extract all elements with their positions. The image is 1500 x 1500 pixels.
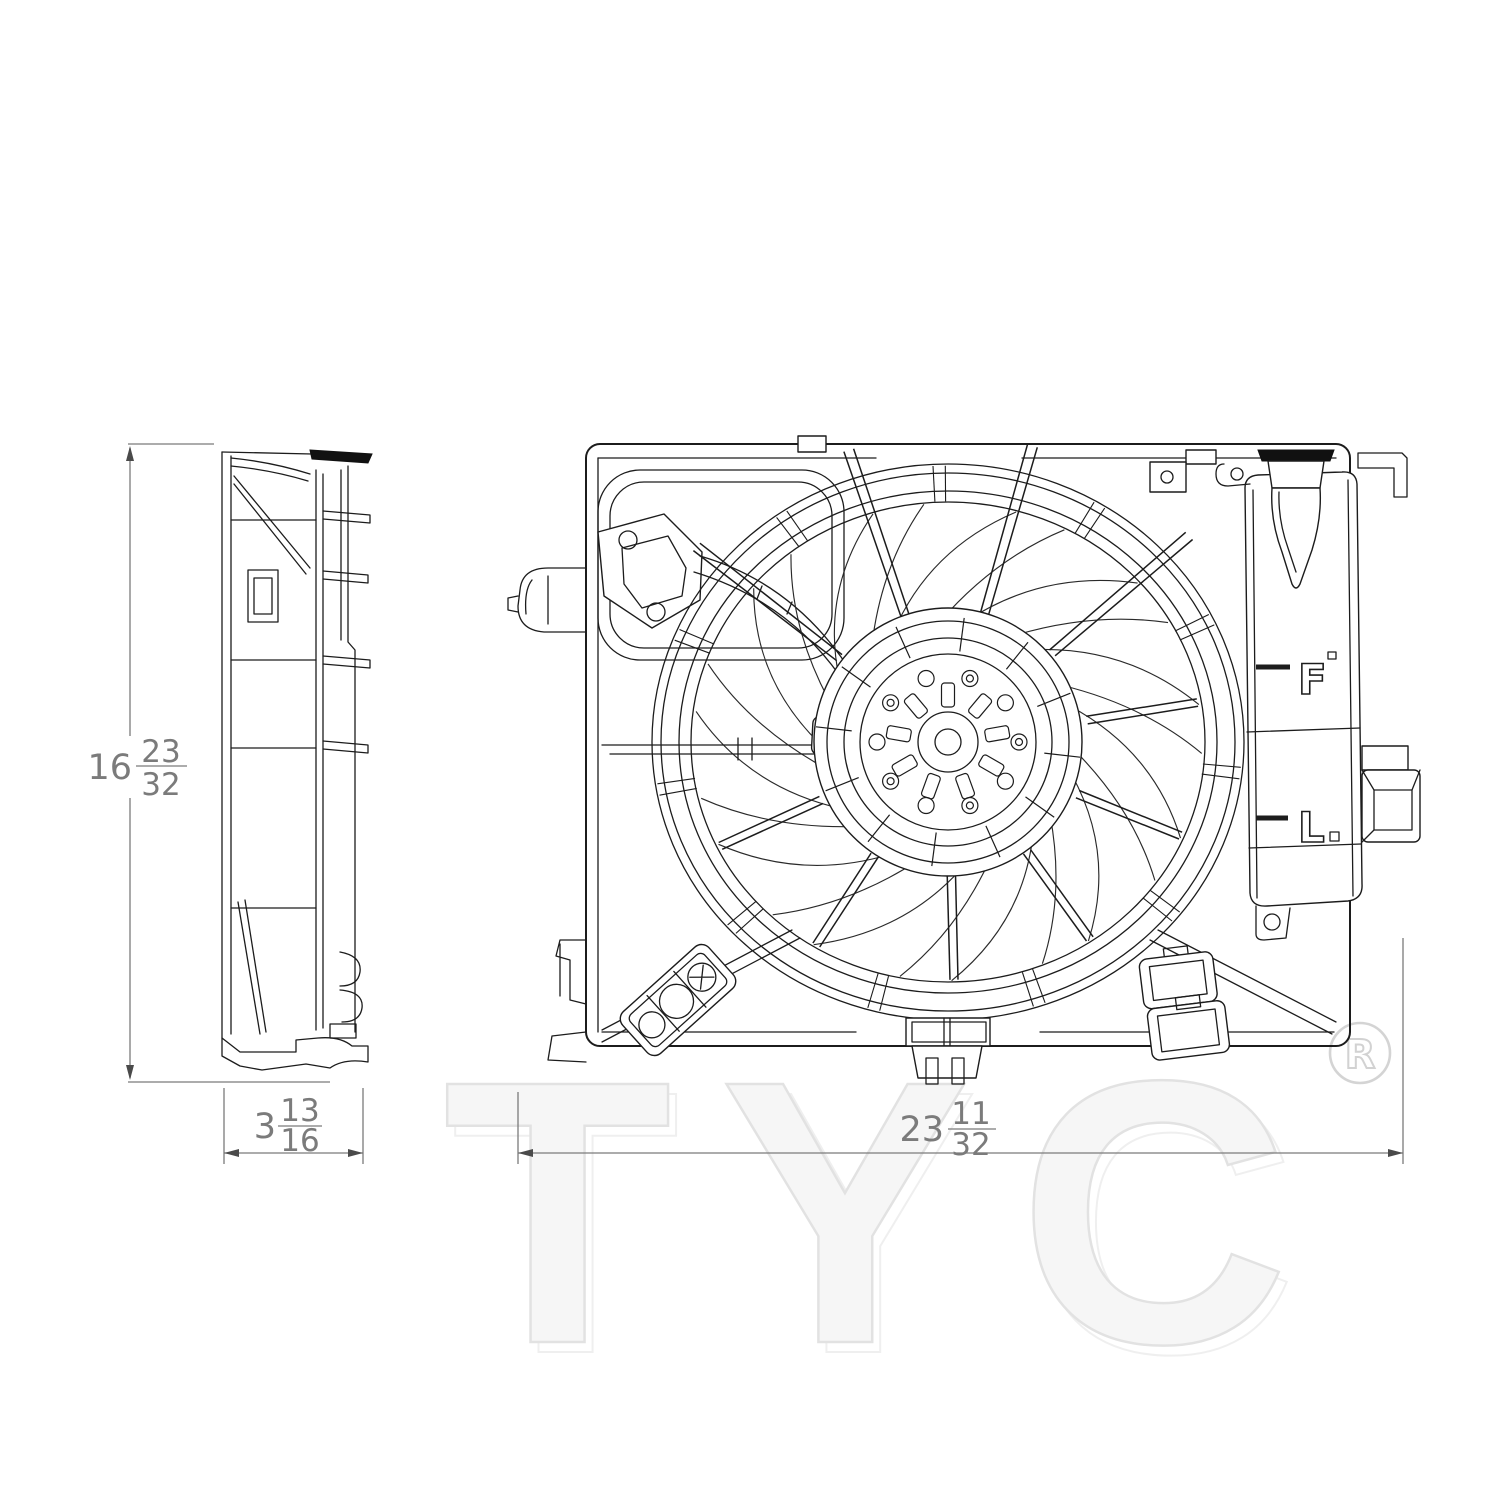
side-internal-ribs <box>231 520 316 908</box>
ring-tie <box>680 630 715 645</box>
low-mark-letter: L <box>1298 803 1325 852</box>
harness-tube <box>694 556 846 676</box>
height-whole: 16 <box>87 748 132 788</box>
spoke-line <box>693 551 836 661</box>
spoke-line <box>1088 706 1198 724</box>
ring-tie <box>1180 625 1214 640</box>
spoke-line <box>719 796 820 842</box>
reservoir-clip <box>1362 770 1420 842</box>
reservoir-top-hook <box>1358 453 1407 497</box>
reservoir-mount-tab-1 <box>1216 464 1250 486</box>
ring-tie <box>1143 898 1172 921</box>
spoke-line <box>1031 850 1094 937</box>
reservoir-bottom-tab <box>1256 906 1290 940</box>
reservoir-clip-step <box>1362 746 1408 770</box>
ring-tie <box>657 778 695 783</box>
spoke-line <box>722 803 823 849</box>
dimension-depth: 3 13 16 <box>224 1088 363 1164</box>
frame-left-hook <box>508 568 586 632</box>
dimension-height: 16 23 32 <box>87 444 330 1082</box>
depth-whole: 3 <box>254 1107 276 1147</box>
side-view <box>222 450 372 1070</box>
ring-tie <box>1203 764 1241 767</box>
brand-watermark-text: TYC <box>443 1004 1337 1422</box>
blade-edge <box>708 664 823 767</box>
height-denominator: 32 <box>141 767 180 803</box>
spoke-line <box>1076 798 1179 839</box>
reservoir-neck <box>1268 461 1324 488</box>
spoke-line <box>980 445 1027 613</box>
technical-drawing-canvas: TYC TYC R <box>0 0 1500 1500</box>
side-diagonal-bottom <box>238 900 266 1034</box>
height-arrow-bottom <box>126 1065 134 1080</box>
frame-left-lower-bracket <box>556 940 586 1004</box>
spoke-line <box>1050 532 1186 650</box>
bottom-bracket <box>906 1018 990 1084</box>
ring-tie <box>1150 890 1180 912</box>
side-clip-bumps <box>340 952 362 1022</box>
height-arrow-top <box>126 446 134 461</box>
spoke-line <box>813 853 871 943</box>
front-view: F L <box>508 436 1420 1084</box>
ring-tie <box>777 517 799 546</box>
ring-tie <box>1175 615 1209 632</box>
blade-edge <box>1071 774 1098 941</box>
bottom-bracket-tongue <box>912 1046 982 1078</box>
hub-plate <box>814 608 1082 876</box>
side-diagonal-top <box>234 476 310 574</box>
side-detail-box-inner <box>254 578 272 614</box>
width-arrow-right <box>1388 1149 1403 1157</box>
side-flange-2 <box>323 571 368 583</box>
side-top-slant-2 <box>231 466 308 481</box>
spoke-line <box>820 857 879 947</box>
depth-arrow-left <box>224 1149 239 1157</box>
side-right-wall <box>348 466 355 1032</box>
width-whole: 23 <box>899 1110 944 1150</box>
side-top-cap <box>310 450 372 463</box>
coolant-reservoir: F L <box>1150 450 1420 940</box>
spoke-line <box>844 452 901 617</box>
side-flange-3 <box>323 656 370 668</box>
side-flange-1 <box>323 511 370 523</box>
spoke-line <box>700 543 842 654</box>
side-flange-4 <box>323 741 368 753</box>
channel-ticks <box>738 738 752 760</box>
fan-hub <box>811 608 1082 876</box>
depth-arrow-right <box>348 1149 363 1157</box>
depth-denominator: 16 <box>280 1123 319 1159</box>
ring-tie <box>933 466 935 502</box>
ring-tie <box>787 511 808 541</box>
reservoir-mount-tab-2 <box>1150 462 1186 492</box>
spoke-line <box>956 874 959 979</box>
ring-tie <box>1202 774 1240 779</box>
frame-top-tab-right <box>1186 450 1216 464</box>
frame-top-tab-left <box>798 436 826 452</box>
spoke-line <box>1079 791 1182 833</box>
side-top-edge <box>222 452 312 454</box>
side-foot-bracket <box>222 1038 368 1070</box>
width-denominator: 32 <box>951 1127 990 1163</box>
reservoir-mount-hole-1 <box>1231 468 1243 480</box>
height-numerator: 23 <box>141 734 180 770</box>
full-mark-letter: F <box>1298 655 1327 704</box>
spoke-line <box>1024 854 1087 941</box>
spoke-line <box>1055 540 1193 656</box>
reservoir-cap <box>1258 450 1334 461</box>
reservoir-bottom-hole <box>1264 914 1280 930</box>
side-clip-foot <box>330 1024 356 1038</box>
spoke-line <box>989 447 1038 615</box>
blade-edge <box>791 554 828 699</box>
